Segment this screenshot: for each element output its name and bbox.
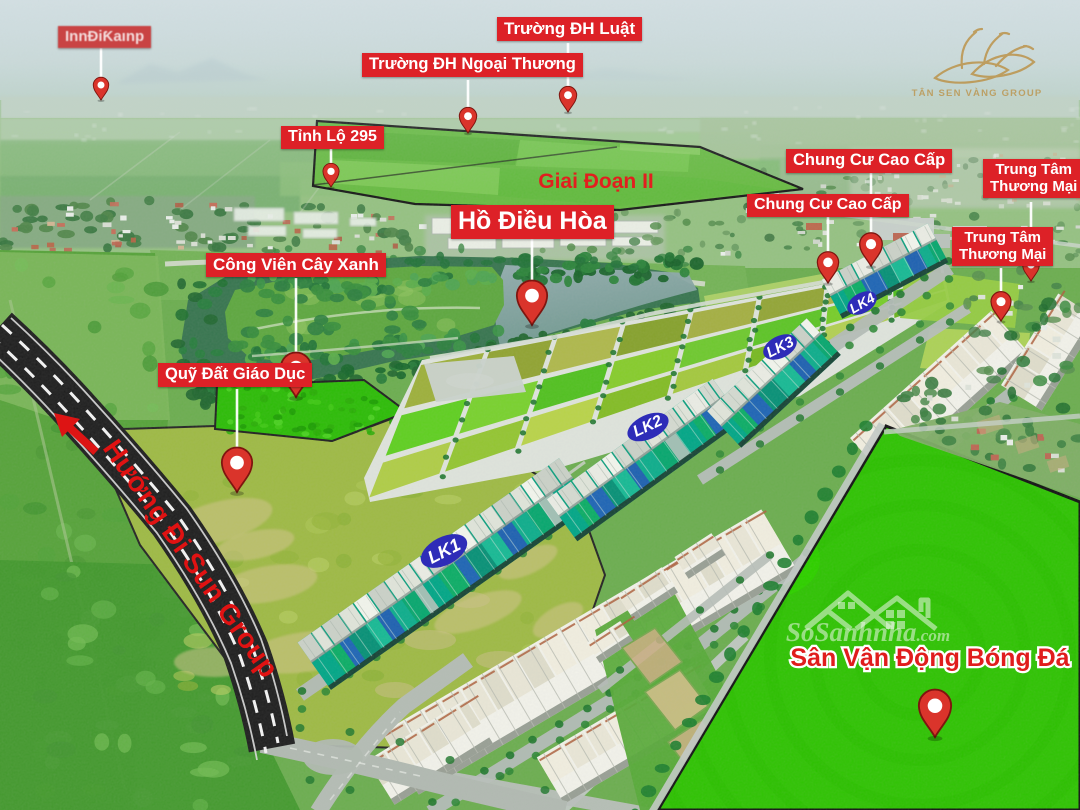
svg-text:Sân Vận Động Bóng Đá: Sân Vận Động Bóng Đá (790, 644, 1069, 672)
svg-text:TÂN SEN VÀNG GROUP: TÂN SEN VÀNG GROUP (912, 87, 1043, 99)
svg-text:Hướng Đi Sun Group: Hướng Đi Sun Group (97, 434, 285, 683)
svg-text:Giai Đoạn II: Giai Đoạn II (538, 170, 654, 193)
